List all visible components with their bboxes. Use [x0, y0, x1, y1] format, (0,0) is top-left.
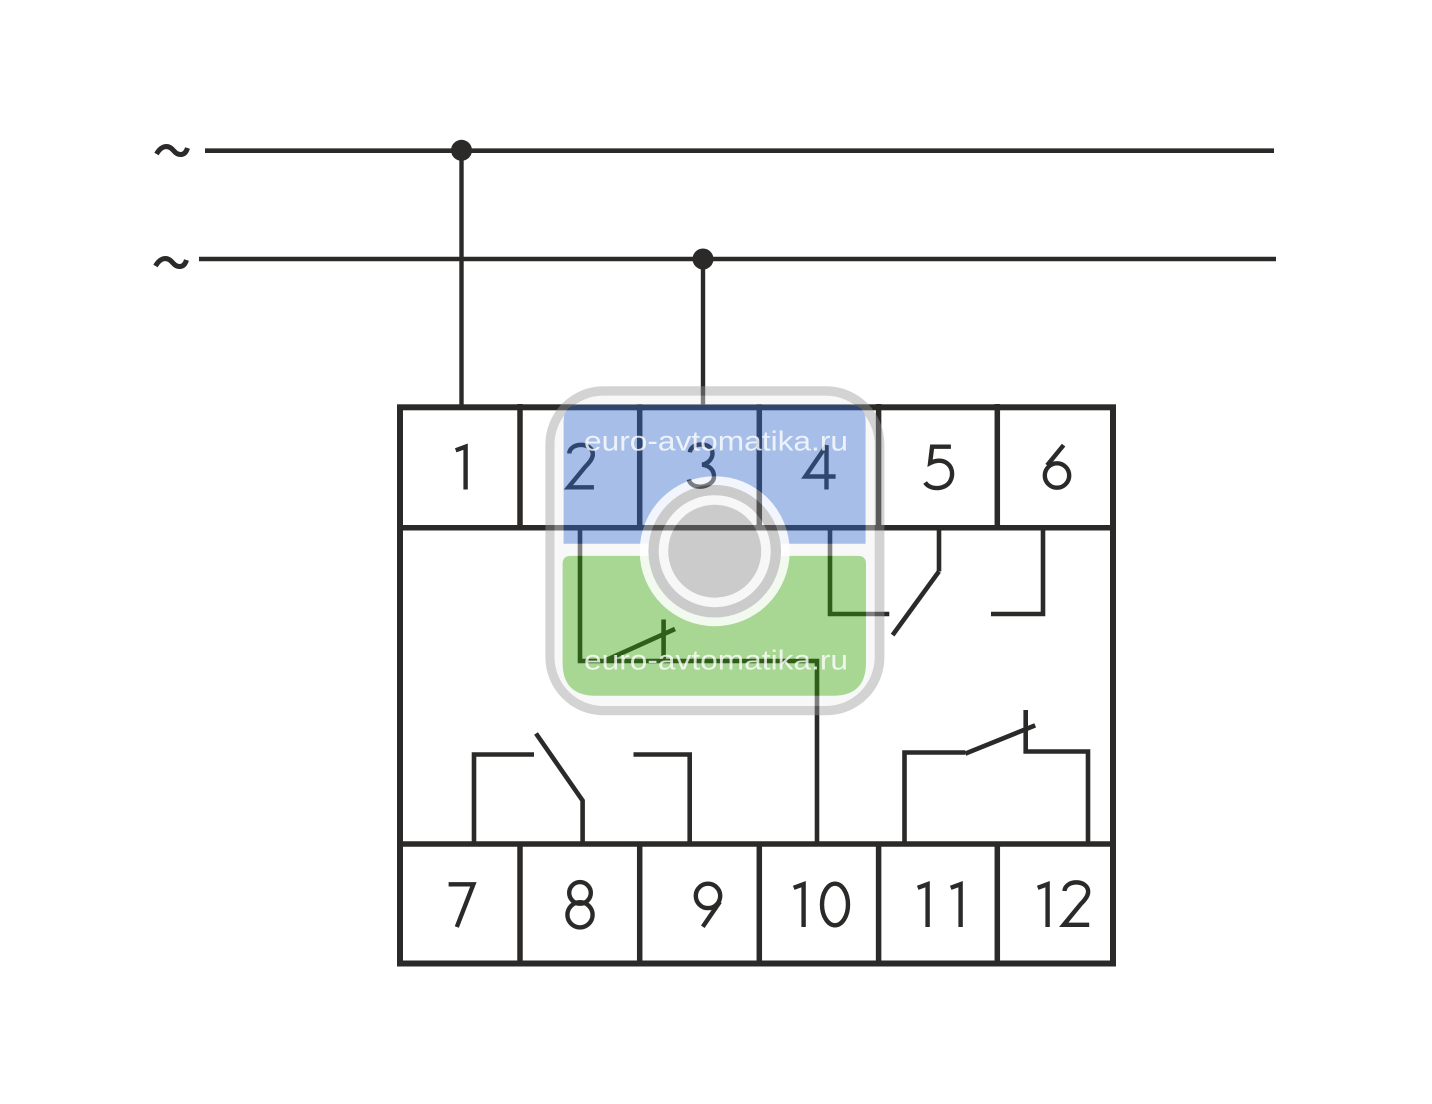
- svg-text:euro-avtomatika.ru: euro-avtomatika.ru: [584, 645, 848, 676]
- svg-text:euro-avtomatika.ru: euro-avtomatika.ru: [584, 426, 848, 457]
